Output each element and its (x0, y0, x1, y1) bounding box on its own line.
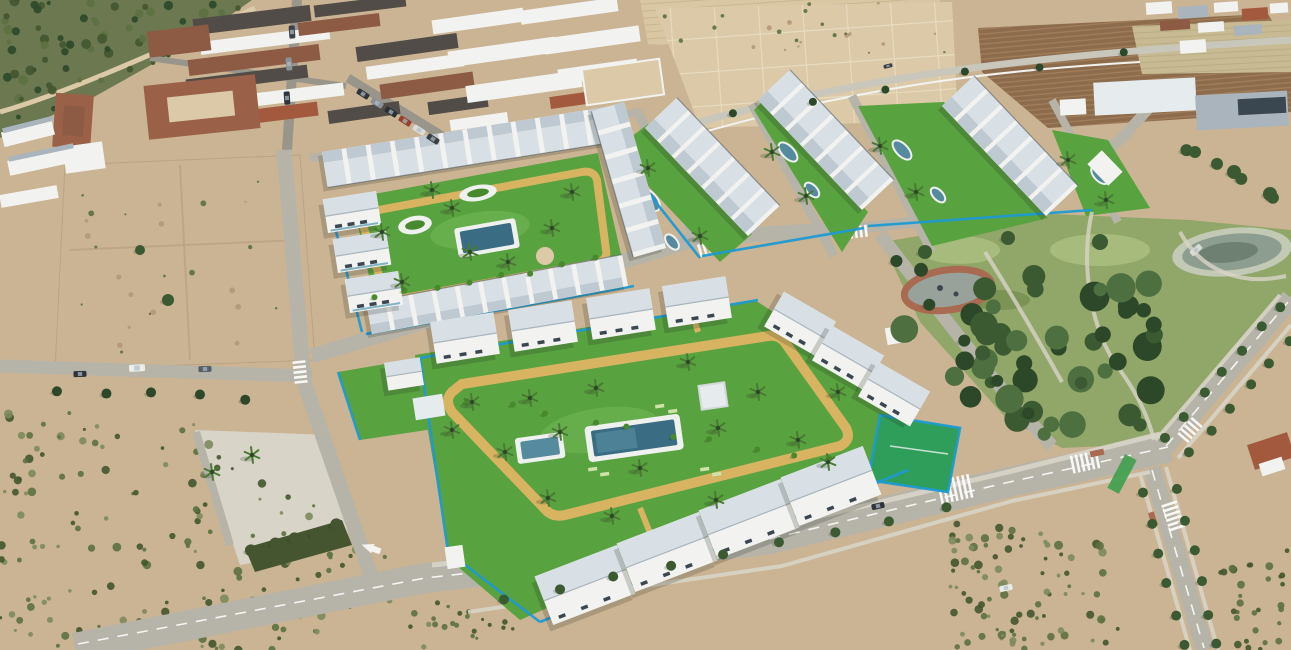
bush (1064, 592, 1068, 596)
bush (421, 644, 426, 649)
bush (150, 309, 156, 315)
bush (115, 434, 120, 439)
car (198, 366, 211, 372)
bush (88, 545, 95, 552)
bush (19, 97, 24, 102)
palm-crown (210, 470, 214, 474)
bush (965, 534, 973, 542)
bush (32, 545, 37, 550)
palm-crown (380, 230, 384, 234)
bush (797, 45, 799, 47)
bush (981, 613, 987, 619)
tree (1092, 234, 1108, 250)
bush (803, 9, 807, 13)
palm-crown (804, 194, 808, 198)
bush (996, 533, 1003, 540)
palm-crown (470, 400, 474, 404)
bush (221, 589, 225, 593)
bush (340, 563, 345, 568)
bush (17, 511, 24, 518)
palm-crown (450, 428, 454, 432)
bush (77, 78, 82, 83)
bush (56, 644, 60, 648)
bush (1116, 627, 1120, 631)
bush (24, 492, 28, 496)
bush (74, 511, 79, 516)
car (284, 91, 291, 104)
street-tree (1275, 302, 1285, 312)
bush (26, 432, 33, 439)
aerial-development-scene (0, 0, 1291, 650)
bush (209, 1, 217, 9)
bush (955, 538, 960, 543)
bush (1059, 552, 1063, 556)
street-tree (1180, 516, 1190, 526)
street-tree (941, 502, 951, 512)
street-tree (1160, 433, 1170, 443)
bush (1019, 544, 1023, 548)
street-tree (592, 255, 598, 261)
bush (40, 452, 45, 457)
bush (1265, 562, 1273, 570)
bush (314, 629, 320, 635)
bush (17, 558, 22, 563)
bush (33, 5, 41, 13)
bush (465, 614, 470, 619)
bush (411, 610, 418, 617)
bush (432, 621, 438, 627)
bush (1234, 641, 1242, 649)
palm-crown (594, 386, 598, 390)
tree (162, 294, 174, 306)
building (1160, 19, 1191, 31)
bush (1277, 621, 1281, 625)
park-tree (973, 277, 996, 300)
palm-crown (796, 438, 800, 442)
street-tree (146, 387, 156, 397)
street-tree (1211, 158, 1223, 170)
street-tree (1217, 367, 1227, 377)
bush (81, 39, 91, 49)
bush (1252, 627, 1258, 633)
bush (280, 627, 286, 633)
bush (1010, 641, 1016, 647)
park-tree (986, 299, 1001, 314)
bush (799, 41, 802, 44)
bush (964, 639, 971, 646)
street-tree (1197, 576, 1207, 586)
bush (501, 625, 505, 629)
park-tree (960, 386, 982, 408)
bush (987, 597, 992, 602)
bush (110, 2, 119, 11)
street-tree (1211, 639, 1221, 649)
building (1270, 2, 1289, 13)
bush (787, 20, 792, 25)
street-tree (371, 294, 377, 300)
bush (142, 609, 147, 614)
street-tree (1036, 63, 1044, 71)
street-tree (1264, 358, 1274, 368)
street-tree (718, 550, 728, 560)
street-tree (1179, 412, 1189, 422)
bush (1040, 642, 1044, 646)
bush (47, 1, 51, 5)
bush (137, 543, 144, 550)
street-tree (555, 584, 565, 594)
aerial-photo-stage (0, 0, 1291, 650)
bush (125, 24, 132, 31)
street-tree (1207, 426, 1217, 436)
bush (3, 25, 12, 34)
street-tree (1200, 387, 1210, 397)
bush (59, 474, 65, 480)
street-tree (1203, 610, 1213, 620)
park-tree (1106, 273, 1135, 302)
palm-crown (468, 250, 472, 254)
bush (1027, 610, 1035, 618)
park-tree (1075, 377, 1088, 390)
palm-crown (770, 150, 774, 154)
street-tree (240, 395, 250, 405)
bush (36, 25, 42, 31)
street-tree (559, 261, 565, 267)
bush (327, 551, 333, 557)
street-tree (1190, 545, 1200, 555)
bush (100, 445, 105, 450)
bush (1042, 614, 1046, 618)
bush (28, 470, 36, 478)
bush (146, 8, 155, 17)
bush (141, 559, 148, 566)
bush (47, 597, 51, 601)
bush (41, 41, 49, 49)
palm-crown (686, 360, 690, 364)
bush (127, 66, 133, 72)
park-tree (1022, 265, 1045, 288)
palm-crown (610, 514, 614, 518)
street-tree (608, 571, 618, 581)
bush (663, 14, 667, 18)
building (1180, 39, 1207, 54)
building (412, 394, 445, 420)
park-tree (1118, 404, 1141, 427)
bush (231, 467, 234, 470)
bush (457, 611, 462, 616)
bush (955, 586, 959, 590)
building (1234, 24, 1263, 36)
bush (1035, 616, 1039, 620)
bush (7, 40, 12, 45)
park-tree (1109, 353, 1127, 371)
bush (961, 591, 966, 596)
building (1178, 5, 1209, 19)
car (129, 364, 145, 372)
street-tree (467, 280, 473, 286)
street-tree (1172, 484, 1182, 494)
bush (881, 42, 885, 46)
park-tree (995, 385, 1023, 413)
bush (315, 572, 321, 578)
bush (948, 536, 956, 544)
bush (1054, 541, 1063, 550)
bush (218, 9, 225, 16)
bush (488, 623, 492, 627)
bush (1058, 627, 1065, 634)
car-windshield (287, 62, 291, 67)
bush (1099, 569, 1107, 577)
street-tree (1153, 549, 1163, 559)
bush (1040, 571, 1044, 575)
bush (470, 634, 475, 639)
car-windshield (203, 367, 207, 371)
bush (511, 627, 514, 630)
street-tree (958, 335, 970, 347)
park-tree (914, 263, 928, 277)
bush (164, 1, 173, 10)
bush (71, 521, 76, 526)
bush (847, 34, 849, 36)
bush (80, 14, 88, 22)
bush (188, 479, 197, 488)
palm-crown (836, 390, 840, 394)
bush (969, 545, 975, 551)
street-tree (1022, 407, 1034, 419)
bush (877, 2, 880, 5)
bush (88, 210, 94, 216)
bush (974, 561, 983, 570)
bush (951, 548, 957, 554)
bush (949, 585, 953, 589)
bush (1094, 591, 1100, 597)
bush (984, 543, 989, 548)
bush (61, 48, 68, 55)
bush (179, 18, 186, 25)
building (445, 545, 466, 569)
bush (442, 624, 448, 630)
bush (169, 533, 175, 539)
bush (92, 440, 99, 447)
street-tree (623, 424, 629, 430)
bush (132, 16, 139, 23)
bush (34, 446, 40, 452)
bush (1091, 638, 1095, 642)
bush (78, 471, 84, 477)
bush (200, 200, 206, 206)
bush (272, 624, 279, 631)
palm-crown (914, 190, 918, 194)
building (1060, 98, 1087, 115)
bush (1086, 611, 1094, 619)
bush (426, 622, 431, 627)
street-tree (1171, 611, 1181, 621)
street-tree (1179, 640, 1189, 650)
bush (767, 25, 772, 30)
bush (1252, 610, 1258, 616)
tree (1263, 187, 1277, 201)
bush (47, 617, 53, 623)
play-equipment (937, 285, 943, 291)
bush (982, 574, 988, 580)
street-tree (435, 285, 441, 291)
street-tree (1161, 578, 1171, 588)
park-tree (945, 367, 964, 386)
street-tree (791, 452, 797, 458)
tree (1227, 165, 1241, 179)
palm-crown (638, 466, 642, 470)
park-tree (975, 345, 990, 360)
bush (868, 52, 870, 54)
bush (85, 233, 91, 239)
street-tree (1120, 48, 1128, 56)
bush (133, 490, 139, 496)
bush (953, 521, 960, 528)
bush (189, 270, 195, 276)
park-tree (1136, 271, 1162, 297)
bush (28, 632, 33, 637)
bush (807, 2, 811, 6)
palm-crown (698, 234, 702, 238)
bush (91, 17, 97, 23)
bush (42, 57, 48, 63)
bush (978, 633, 985, 640)
street-tree (309, 528, 321, 540)
bush (1247, 563, 1252, 568)
bush (128, 292, 133, 297)
bush (955, 644, 960, 649)
street-tree (809, 98, 817, 106)
bush (285, 494, 291, 500)
street-tree (330, 518, 342, 530)
bush (978, 601, 985, 608)
bush (107, 582, 115, 590)
bush (95, 424, 99, 428)
bush (833, 33, 837, 37)
bush (235, 341, 240, 346)
tree (1001, 231, 1015, 245)
palm-crown (400, 280, 404, 284)
bush (296, 577, 300, 581)
street-tree (881, 86, 889, 94)
bush (208, 640, 216, 648)
bush (8, 46, 17, 55)
bush (204, 440, 213, 449)
bush (102, 466, 110, 474)
bush (149, 313, 151, 315)
bush (721, 14, 725, 18)
bush (1262, 640, 1267, 645)
bush (244, 201, 246, 203)
bush (142, 548, 146, 552)
bush (258, 479, 266, 487)
bush (995, 524, 1003, 532)
street-tree (1138, 488, 1148, 498)
bush (62, 65, 69, 72)
building (1238, 97, 1287, 115)
bush (1021, 537, 1025, 541)
bush (1057, 574, 1061, 578)
bush (120, 350, 123, 353)
bush (961, 557, 969, 565)
bush (1236, 599, 1243, 606)
bush (42, 600, 47, 605)
park-tree (1095, 326, 1111, 342)
bush (435, 600, 440, 605)
palm-crown (716, 426, 720, 430)
bush (1278, 574, 1282, 578)
bush (192, 423, 195, 426)
bush (159, 221, 164, 226)
bush (16, 115, 21, 120)
car-windshield (290, 30, 294, 35)
bush (481, 618, 484, 621)
street-tree (1147, 519, 1157, 529)
park-tree (890, 315, 918, 343)
street-tree (52, 386, 62, 396)
palm-crown (646, 166, 650, 170)
bush (820, 22, 824, 26)
street-tree (1246, 379, 1256, 389)
bush (217, 455, 222, 460)
bush (117, 342, 123, 348)
bush (229, 287, 235, 293)
bush (205, 599, 212, 606)
bush (1266, 576, 1271, 581)
bush (40, 544, 45, 549)
bush (48, 86, 57, 95)
bush (235, 5, 241, 11)
bush (1238, 594, 1242, 598)
street-tree (774, 537, 784, 547)
bush (163, 462, 168, 467)
bush (28, 487, 37, 496)
bush (116, 274, 121, 279)
bush (1231, 608, 1237, 614)
street-tree (884, 516, 894, 526)
bush (1038, 531, 1043, 536)
bush (165, 601, 169, 605)
bush (1081, 592, 1084, 595)
bush (4, 409, 13, 418)
building (1214, 1, 1239, 13)
bush (81, 303, 83, 305)
bush (502, 619, 508, 625)
bush (139, 35, 147, 43)
bush (203, 502, 208, 507)
bush (1237, 581, 1245, 589)
bush (61, 632, 69, 640)
park-tree (1137, 376, 1165, 404)
bush (3, 13, 9, 19)
car (73, 371, 86, 377)
bush (25, 66, 35, 76)
bush (977, 570, 981, 574)
bush (23, 458, 28, 463)
street-tree (706, 436, 712, 442)
bush (10, 70, 19, 79)
car-windshield (134, 365, 140, 370)
park-tree (1045, 326, 1069, 350)
palm-crown (506, 260, 510, 264)
bush (85, 219, 89, 223)
street-tree (542, 410, 548, 416)
bush (1008, 534, 1014, 540)
bush (431, 616, 436, 621)
bush (1067, 584, 1071, 588)
bush (1010, 617, 1018, 625)
bush (1100, 618, 1104, 622)
street-tree (890, 255, 902, 267)
